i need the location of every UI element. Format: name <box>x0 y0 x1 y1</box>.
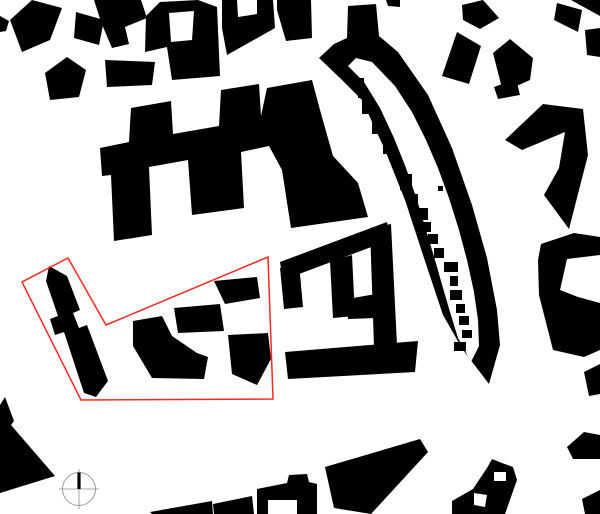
block-n-bar <box>105 60 155 87</box>
notch-se-bar-lower <box>474 493 487 507</box>
courtyard-structure-speck <box>434 248 444 258</box>
courtyard-structure-speck <box>450 276 458 286</box>
notch-se-bar-upper <box>494 472 506 481</box>
courtyard-structure-speck <box>362 100 372 114</box>
courtyard-n-ring <box>169 11 194 42</box>
courtyard-structure-speck <box>394 158 402 170</box>
courtyard-structure-speck <box>428 234 438 244</box>
courtyard-structure-speck <box>462 330 472 338</box>
courtyard-structure-speck <box>423 222 431 232</box>
block-e3-mid-tooth <box>330 255 355 318</box>
courtyard-structure-speck <box>456 304 465 313</box>
courtyard-structure-speck <box>438 186 443 191</box>
site-building-mid <box>174 304 224 333</box>
courtyard-structure-speck <box>400 174 412 190</box>
courtyard-structure-speck <box>372 120 380 134</box>
courtyard-structure-speck <box>383 140 393 154</box>
map-canvas <box>0 0 600 514</box>
courtyard-structure-speck <box>358 78 364 98</box>
courtyard-structure-speck <box>416 208 428 220</box>
courtyard-structure-speck <box>459 316 469 325</box>
block-n-sliver <box>386 0 400 7</box>
courtyard-structure-speck <box>450 290 462 300</box>
block-ne-edge-piece <box>585 28 600 57</box>
courtyard-structure-speck <box>444 262 458 272</box>
north-arrow-needle <box>77 473 80 490</box>
block-e3-left-tooth <box>280 263 303 309</box>
figure-ground-map <box>0 0 600 514</box>
courtyard-structure-speck <box>454 342 466 351</box>
courtyard-structure-speck <box>410 194 418 206</box>
